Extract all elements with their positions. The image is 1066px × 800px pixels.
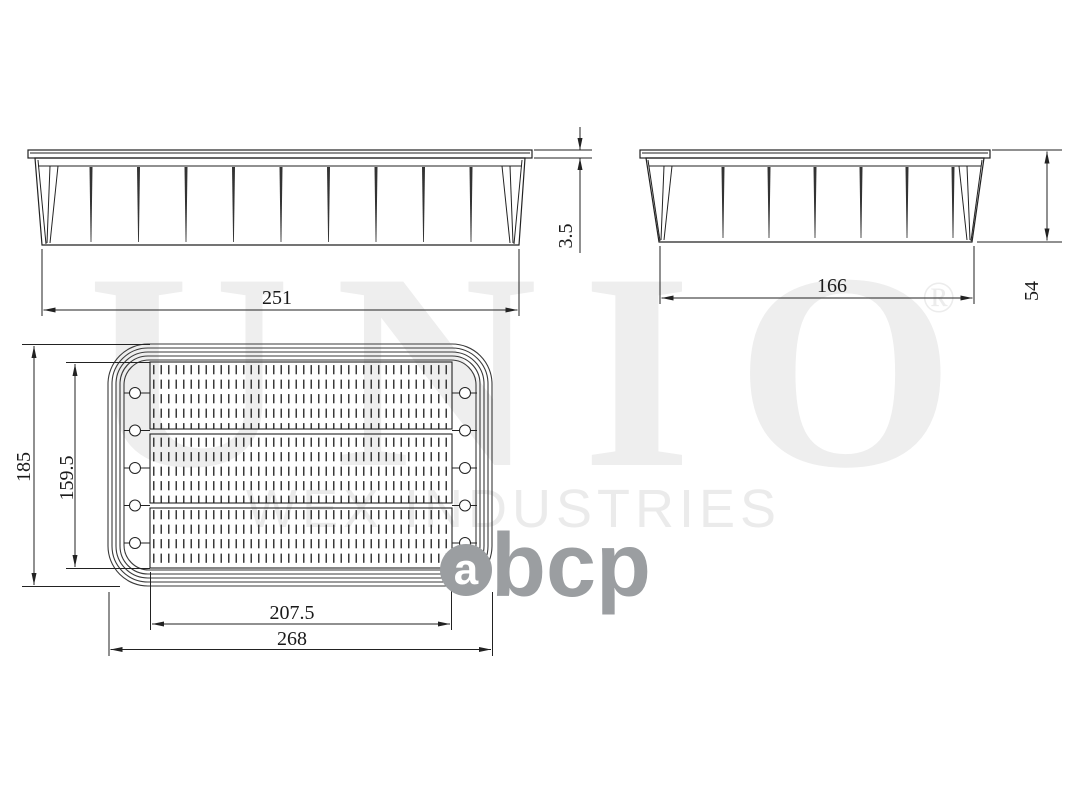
- dim-overall-height: [977, 150, 1062, 242]
- side-view-ribs: [722, 167, 955, 238]
- dim-251-label: 251: [262, 287, 292, 309]
- front-view-ribs: [90, 167, 473, 242]
- dim-185-label: 185: [13, 452, 35, 482]
- dim-159.5-label: 159.5: [56, 456, 78, 501]
- dim-166-label: 166: [817, 275, 847, 297]
- filter-technical-drawing: UNIO ® WEX INDUSTRIES: [0, 0, 1066, 800]
- plan-view-pleat-panels: [150, 362, 452, 568]
- dim-54-label: 54: [1021, 281, 1043, 301]
- drawing-canvas: 251 3.5 166 54 185 159.5 207.5 268: [0, 0, 1066, 800]
- dim-268-label: 268: [277, 628, 307, 650]
- dim-207.5-label: 207.5: [270, 602, 315, 624]
- dim-3.5-label: 3.5: [555, 224, 577, 249]
